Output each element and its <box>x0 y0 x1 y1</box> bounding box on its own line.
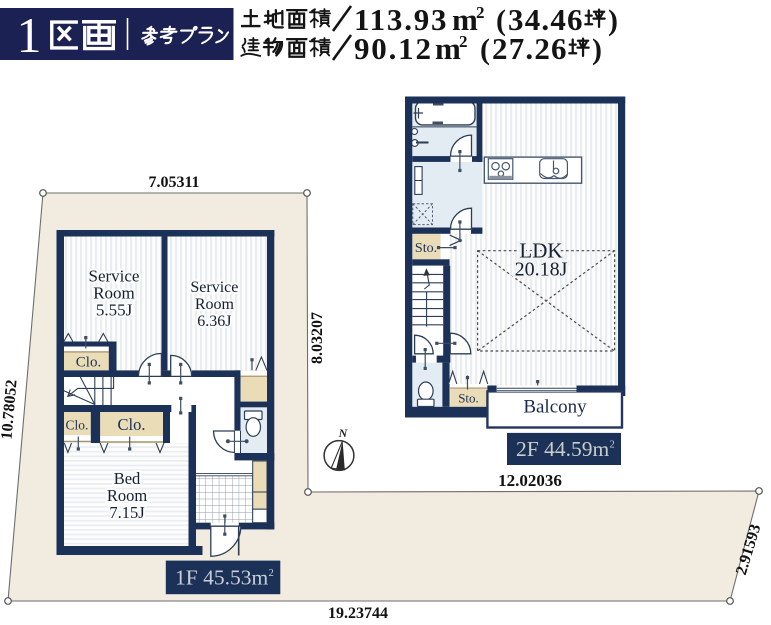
svg-text:2: 2 <box>610 440 615 451</box>
svg-text:5.55J: 5.55J <box>96 301 133 320</box>
svg-text:7.15J: 7.15J <box>109 503 145 522</box>
svg-text:90.12: 90.12 <box>354 31 433 66</box>
svg-text:27.26: 27.26 <box>492 31 568 66</box>
svg-text:20.18J: 20.18J <box>515 259 568 281</box>
svg-text:Sto.: Sto. <box>458 391 479 406</box>
svg-text:Service: Service <box>190 279 238 296</box>
svg-text:2: 2 <box>269 568 274 579</box>
svg-text:m: m <box>435 31 461 66</box>
svg-text:2F 44.59m: 2F 44.59m <box>516 437 609 461</box>
svg-text:Balcony: Balcony <box>523 397 587 418</box>
svg-text:2: 2 <box>476 3 485 22</box>
svg-text:1: 1 <box>17 7 42 63</box>
svg-text:8.03207: 8.03207 <box>309 312 326 364</box>
svg-text:19.23744: 19.23744 <box>328 605 388 622</box>
svg-text:Room: Room <box>195 296 235 313</box>
svg-text:Sto.: Sto. <box>415 241 437 256</box>
svg-text:12.02036: 12.02036 <box>498 471 562 490</box>
svg-text:Clo.: Clo. <box>66 418 89 433</box>
svg-text:N: N <box>338 426 349 440</box>
svg-text:(: ( <box>480 33 490 66</box>
svg-text:7.05311: 7.05311 <box>148 174 199 191</box>
svg-text:6.36J: 6.36J <box>197 313 231 330</box>
svg-text:Clo.: Clo. <box>76 355 101 371</box>
svg-text:): ) <box>608 4 618 37</box>
svg-text:Clo.: Clo. <box>118 415 146 434</box>
svg-text:2: 2 <box>459 32 468 51</box>
svg-text:): ) <box>592 33 602 66</box>
svg-text:1F 45.53m: 1F 45.53m <box>175 566 268 590</box>
